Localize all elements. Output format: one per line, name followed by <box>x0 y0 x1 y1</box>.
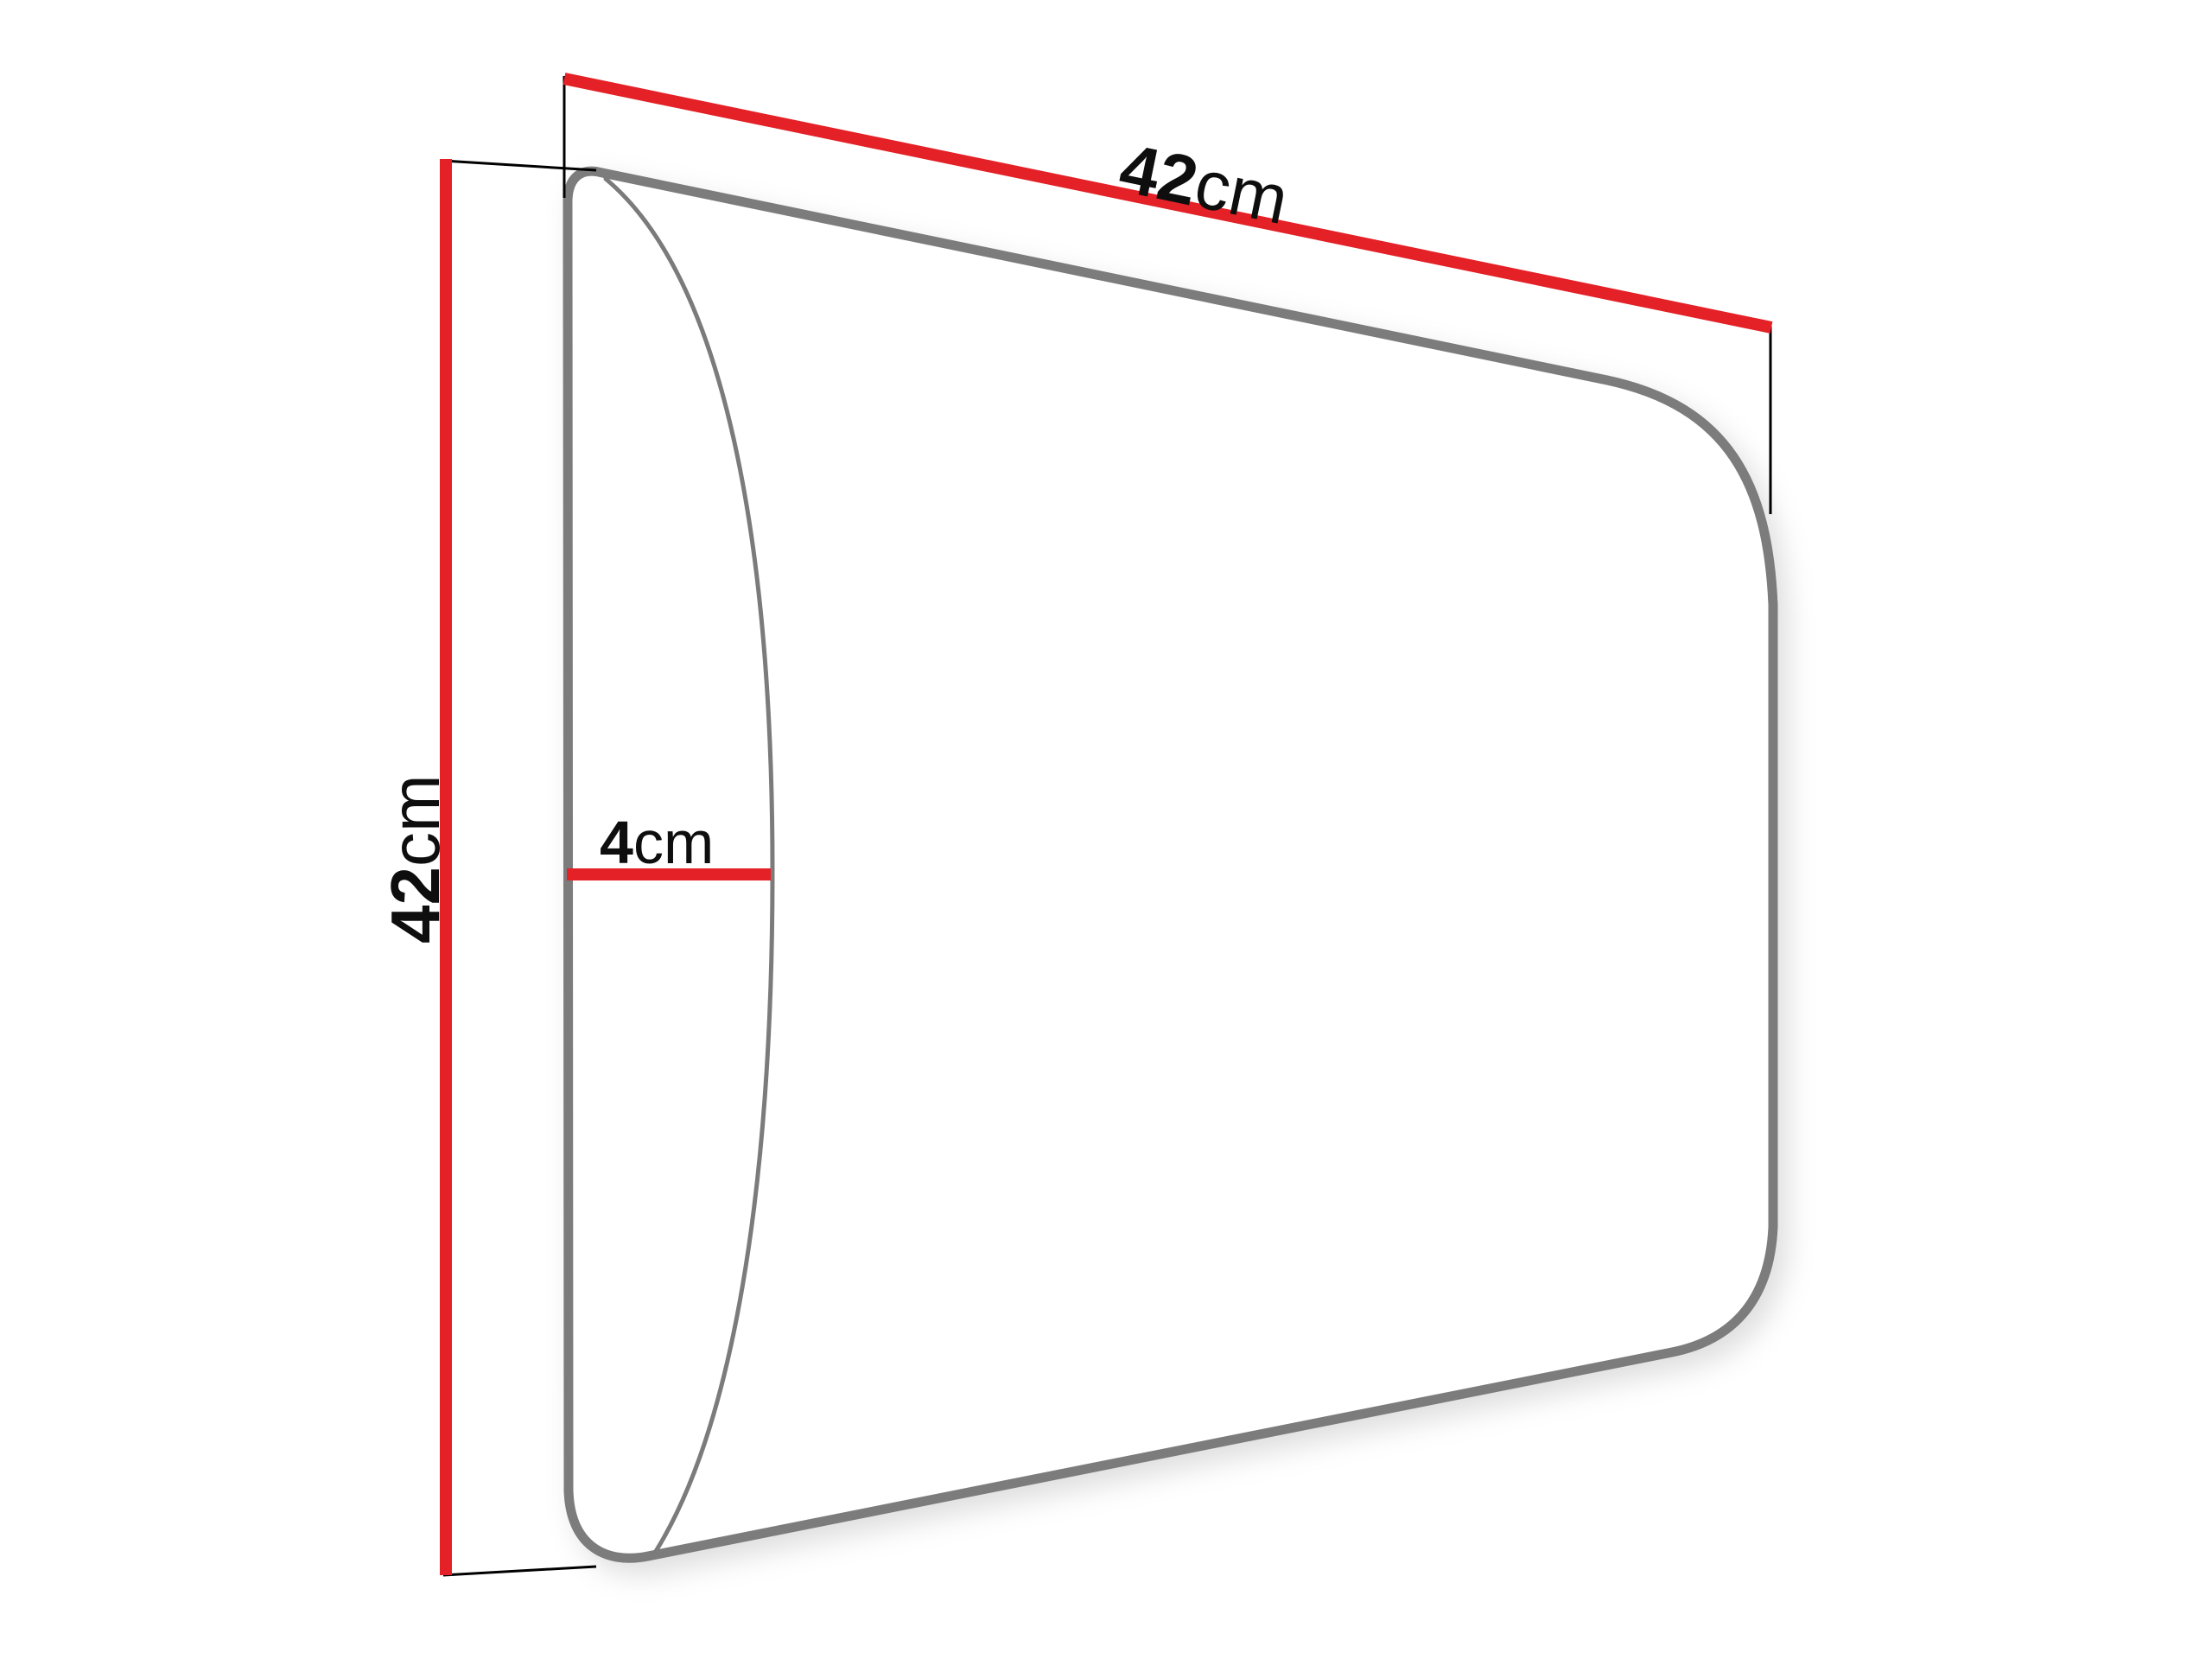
width-dimension-label: 42cm <box>1114 129 1295 238</box>
height-unit: cm <box>377 774 454 867</box>
depth-dimension-label: 4cm <box>600 809 714 876</box>
extension-line-top-left-horizontal <box>443 161 596 170</box>
height-value: 42 <box>377 867 454 944</box>
height-dimension-label: 42cm <box>377 774 454 944</box>
width-value: 42 <box>1114 129 1205 219</box>
dimension-diagram: 42cm 42cm 4cm <box>0 0 2212 1659</box>
panel-outline <box>568 171 1773 1558</box>
width-unit: cm <box>1189 144 1294 238</box>
depth-value: 4 <box>600 809 633 876</box>
panel-diagram-svg: 42cm 42cm 4cm <box>0 0 2212 1659</box>
extension-line-bottom-left-horizontal <box>443 1567 596 1575</box>
depth-unit: cm <box>633 809 714 876</box>
